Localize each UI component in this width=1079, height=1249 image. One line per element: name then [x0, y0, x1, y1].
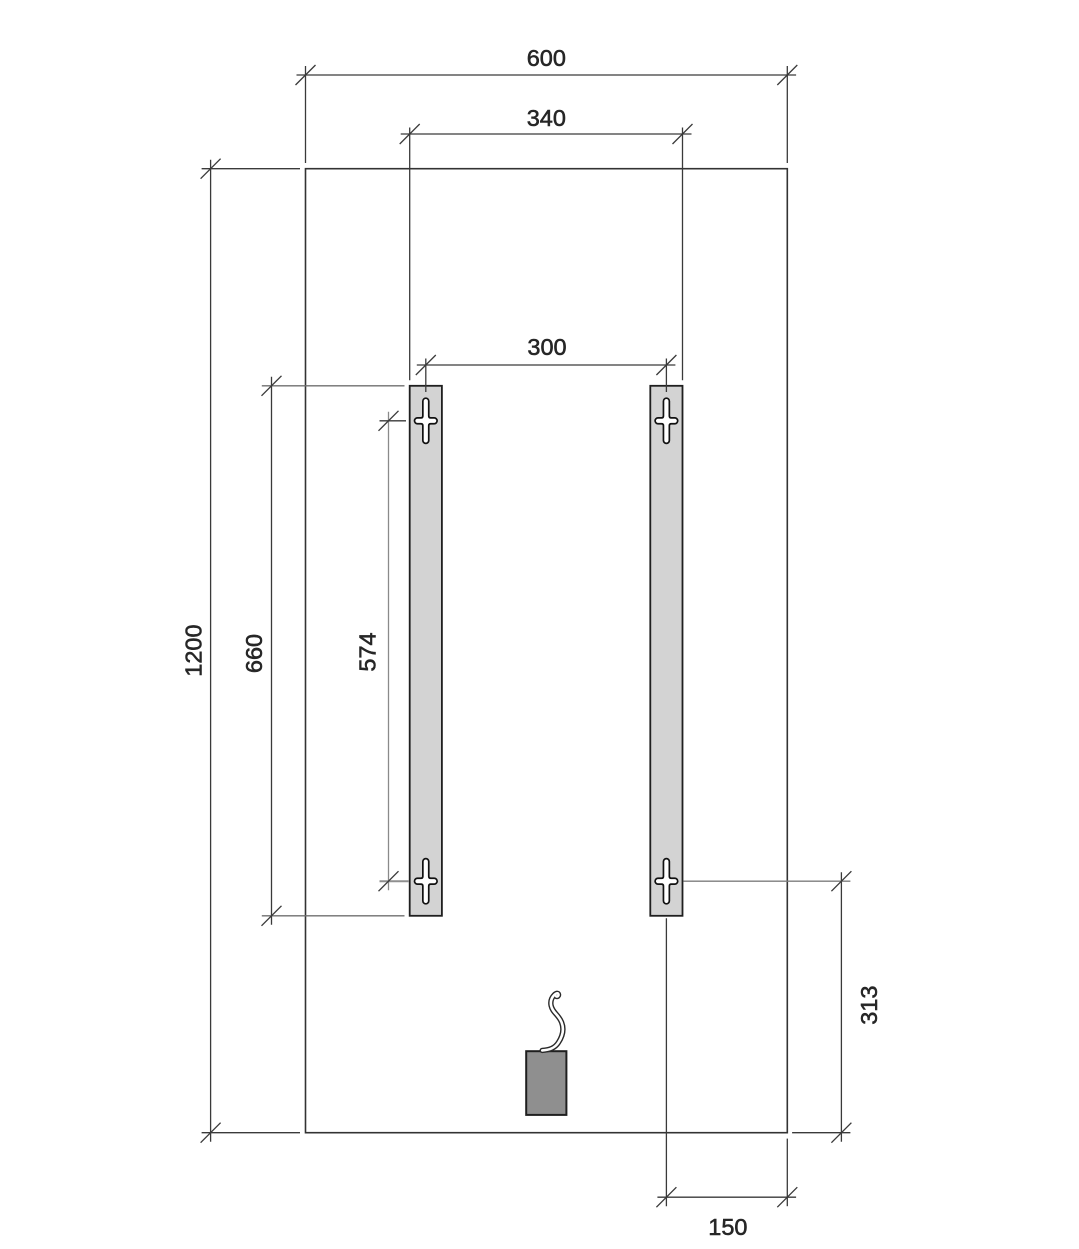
- svg-text:660: 660: [241, 634, 267, 673]
- svg-text:1200: 1200: [180, 624, 206, 676]
- svg-text:150: 150: [708, 1214, 747, 1240]
- svg-text:574: 574: [355, 632, 381, 671]
- svg-text:313: 313: [856, 986, 882, 1025]
- svg-text:300: 300: [527, 334, 566, 360]
- svg-text:600: 600: [527, 45, 566, 71]
- svg-text:340: 340: [527, 105, 566, 131]
